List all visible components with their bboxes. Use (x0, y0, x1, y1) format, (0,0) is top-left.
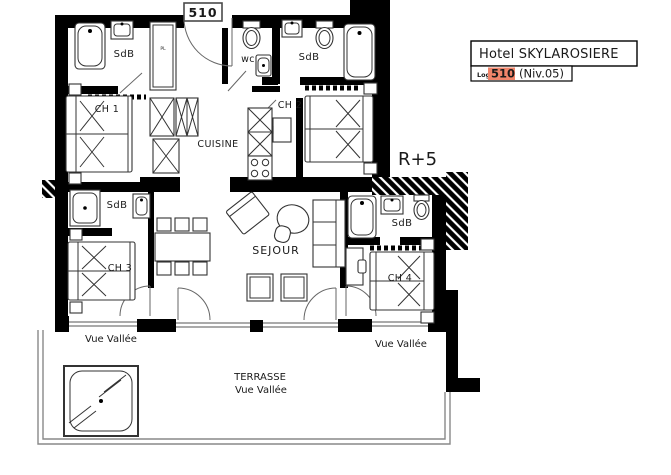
floor-marker: R+5 (398, 149, 437, 170)
armchair-rotated (226, 192, 270, 235)
hotel-name: Hotel SKYLAROSIERE (479, 47, 619, 62)
ch2-bed (305, 83, 377, 174)
wc-door-leaf (228, 71, 246, 91)
sdb4-bathtub (348, 196, 376, 238)
room-label-ch2: CH 2 (278, 100, 302, 111)
room-label-ch3: CH 3 (108, 263, 132, 274)
sdb3-shower (70, 190, 100, 226)
ch1-bed (66, 84, 132, 184)
sdb2-sink (282, 20, 302, 37)
pouf-right (281, 274, 307, 301)
view-label-right: Vue Vallée (375, 338, 427, 350)
title-block: Hotel SKYLAROSIERE Log 510 (Niv.05) (471, 41, 637, 81)
wc-toilet (243, 21, 260, 49)
room-label-closet: PL (160, 46, 166, 52)
floor-plan-page: SdB wc SdB PL CH 1 CH 2 CUISINE SdB SdB … (0, 0, 671, 475)
title-unit-number: 510 (491, 67, 515, 81)
sdb1-door-leaf (120, 73, 142, 93)
room-label-ch1: CH 1 (95, 104, 119, 115)
dining-table (155, 218, 210, 275)
sdb3-sink (133, 194, 150, 218)
unit-number-box: 510 (184, 3, 222, 21)
room-label-wc: wc (241, 54, 255, 65)
terrace-door-left-arc (178, 288, 210, 320)
unit-number-text: 510 (188, 5, 217, 20)
sdb4-sink (381, 196, 403, 214)
armchair-round (273, 201, 312, 244)
room-label-sdb4: SdB (392, 218, 413, 229)
room-label-terrasse: TERRASSE (233, 372, 286, 383)
ch4-desk (346, 248, 366, 285)
room-label-sdb3: SdB (107, 200, 128, 211)
entry-closet (150, 22, 176, 90)
sdb1-bathtub (75, 23, 105, 69)
kitchen-stove (248, 156, 272, 180)
view-label-terrace: Vue Vallée (235, 384, 287, 396)
floor-plan-drawing: SdB wc SdB PL CH 1 CH 2 CUISINE SdB SdB … (0, 0, 671, 475)
sofa (313, 200, 345, 267)
room-label-cuisine: CUISINE (197, 139, 238, 150)
room-label-sdb2: SdB (299, 52, 320, 63)
sdb2-bathtub (344, 24, 375, 80)
room-label-sejour: SEJOUR (252, 244, 300, 257)
room-label-ch4: CH 4 (388, 273, 412, 284)
terrace-door-right-arc (304, 288, 336, 320)
sdb1-sink (111, 21, 133, 39)
view-label-left: Vue Vallée (85, 333, 137, 345)
room-label-sdb1: SdB (114, 49, 135, 60)
hot-tub (64, 366, 138, 436)
pouf-left (247, 274, 273, 301)
sdb4-toilet (414, 195, 429, 220)
level-label: (Niv.05) (519, 67, 564, 81)
wc-appliance (256, 55, 271, 76)
windows (69, 322, 428, 327)
sdb2-toilet (316, 21, 333, 49)
